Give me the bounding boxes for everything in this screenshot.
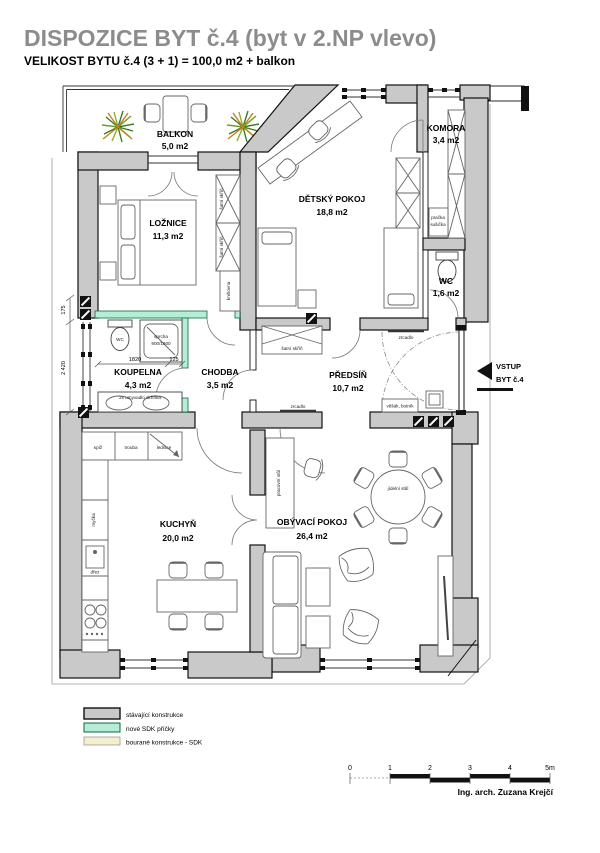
shower: sprcha 900/1900 bbox=[140, 320, 182, 362]
svg-text:pracovní stůl: pracovní stůl bbox=[275, 470, 281, 496]
wardrobe: šatní skříň šatní skříň bbox=[216, 175, 240, 271]
entrance-arrow-icon bbox=[477, 362, 492, 380]
side-table bbox=[306, 616, 330, 648]
page-title: DISPOZICE BYT č.4 (byt v 2.NP vlevo) bbox=[24, 25, 436, 51]
svg-text:trouba: trouba bbox=[124, 445, 137, 450]
bed bbox=[258, 228, 316, 308]
detsky-label: DĚTSKÝ POKOJ bbox=[299, 193, 366, 204]
chodba-area: 3,5 m2 bbox=[207, 380, 234, 390]
svg-text:sprcha: sprcha bbox=[154, 334, 168, 339]
legend-swatch-new-sdk bbox=[84, 723, 120, 732]
svg-text:knihovna: knihovna bbox=[226, 281, 231, 300]
svg-text:900/1900: 900/1900 bbox=[151, 341, 171, 346]
predsin-area: 10,7 m2 bbox=[332, 383, 363, 393]
double-sink-cabinet: 2x umyvadlo skříňka bbox=[98, 392, 182, 412]
stool bbox=[426, 391, 443, 408]
kuchyn-label: KUCHYŇ bbox=[160, 518, 196, 529]
mirror: zrcadlo bbox=[280, 404, 316, 411]
svg-text:šatní skříň: šatní skříň bbox=[281, 346, 303, 351]
svg-text:pračka: pračka bbox=[431, 215, 445, 220]
room-loznice: šatní skříň šatní skříň knihovna LOŽNICE… bbox=[100, 175, 240, 311]
legend-swatch-demolished bbox=[84, 737, 120, 745]
bed bbox=[384, 228, 418, 308]
svg-text:3: 3 bbox=[468, 765, 472, 772]
double-bed bbox=[118, 200, 196, 285]
svg-text:šatní skříň: šatní skříň bbox=[219, 236, 224, 258]
legend-label-new-sdk: nové SDK příčky bbox=[126, 726, 175, 733]
work-desk: pracovní stůl bbox=[266, 438, 325, 528]
room-obyvaci-pokoj: pracovní stůl jídelní stůl OBÝVACÍ POKOJ bbox=[263, 438, 453, 658]
floor-plan-page: DISPOZICE BYT č.4 (byt v 2.NP vlevo) VEL… bbox=[0, 0, 600, 848]
loznice-label: LOŽNICE bbox=[149, 217, 187, 228]
bookcase: knihovna bbox=[220, 271, 240, 311]
legend-swatch-existing bbox=[84, 708, 120, 719]
komora-area: 3,4 m2 bbox=[433, 135, 460, 145]
svg-text:dřez: dřez bbox=[91, 570, 101, 575]
svg-text:spíž: spíž bbox=[94, 445, 103, 450]
svg-text:125: 125 bbox=[169, 357, 178, 363]
svg-text:věšák, botník: věšák, botník bbox=[386, 404, 414, 409]
room-chodba: CHODBA 3,5 m2 bbox=[201, 367, 238, 390]
side-table bbox=[306, 568, 330, 606]
tv-unit bbox=[438, 556, 453, 656]
balcony-area: 5,0 m2 bbox=[162, 141, 189, 151]
svg-text:zrcadlo: zrcadlo bbox=[399, 335, 414, 340]
svg-text:0: 0 bbox=[348, 765, 352, 772]
svg-text:4: 4 bbox=[508, 765, 512, 772]
room-komora: pračka sušička KOMORA 3,4 m2 bbox=[427, 110, 466, 238]
wc-area: 1,6 m2 bbox=[433, 288, 460, 298]
svg-text:1820: 1820 bbox=[129, 357, 141, 363]
dining-table: jídelní stůl bbox=[353, 451, 444, 544]
bathroom-dimension: 1820 125 bbox=[95, 357, 185, 367]
wardrobe bbox=[396, 158, 420, 228]
architect-credit: Ing. arch. Zuzana Krejčí bbox=[458, 787, 554, 797]
room-wc: WC 1,6 m2 bbox=[433, 252, 460, 298]
detsky-area: 18,8 m2 bbox=[316, 207, 347, 217]
predsin-label: PŘEDSÍŇ bbox=[329, 369, 367, 380]
toilet: WC bbox=[108, 320, 132, 351]
svg-text:175: 175 bbox=[61, 305, 67, 314]
scale-bar: 0 1 2 3 4 5m bbox=[348, 765, 555, 784]
floor-plan-canvas: DISPOZICE BYT č.4 (byt v 2.NP vlevo) VEL… bbox=[0, 0, 600, 848]
kitchen-counter-top: spíž trouba lednice bbox=[82, 432, 182, 460]
obyvak-label: OBÝVACÍ POKOJ bbox=[277, 516, 347, 527]
svg-text:5m: 5m bbox=[545, 765, 555, 772]
svg-text:myčka: myčka bbox=[91, 513, 96, 527]
chodba-label: CHODBA bbox=[201, 367, 238, 377]
coat-shoe-rack: věšák, botník bbox=[382, 399, 418, 412]
svg-text:WC: WC bbox=[116, 337, 124, 342]
entrance-annotation: VSTUP BYT č.4 bbox=[477, 362, 524, 391]
wc-label: WC bbox=[439, 276, 453, 286]
armchair bbox=[339, 606, 381, 647]
entrance-label-2: BYT č.4 bbox=[496, 375, 524, 384]
sofa bbox=[263, 552, 301, 658]
kitchen-counter-left: myčka dřez bbox=[82, 460, 108, 652]
entrance-label-1: VSTUP bbox=[496, 362, 521, 371]
dimension-lines: 175 2 420 bbox=[61, 295, 74, 415]
hall-wardrobe: šatní skříň bbox=[262, 326, 322, 354]
legend: stávající konstrukce nové SDK příčky bou… bbox=[84, 708, 203, 747]
room-predsin: šatní skříň zrcadlo zrcadlo věšák, botní… bbox=[262, 326, 443, 412]
mirror: zrcadlo bbox=[388, 331, 424, 340]
svg-text:1: 1 bbox=[388, 765, 392, 772]
legend-label-demolished: bourané konstrukce - SDK bbox=[126, 740, 203, 747]
loznice-area: 11,3 m2 bbox=[153, 231, 184, 241]
koupelna-area: 4,3 m2 bbox=[125, 380, 152, 390]
armchair bbox=[337, 545, 377, 585]
svg-text:sušička: sušička bbox=[430, 222, 446, 227]
koupelna-label: KOUPELNA bbox=[114, 367, 162, 377]
room-koupelna: WC sprcha 900/1900 1820 125 2x umyvadlo … bbox=[95, 320, 185, 412]
balcony-label: BALKON bbox=[157, 129, 193, 139]
komora-label: KOMORA bbox=[427, 123, 466, 133]
svg-text:2x umyvadlo skříňka: 2x umyvadlo skříňka bbox=[119, 395, 161, 400]
svg-text:jídelní stůl: jídelní stůl bbox=[387, 485, 409, 491]
obyvak-area: 26,4 m2 bbox=[296, 531, 327, 541]
plant-icon bbox=[102, 111, 134, 142]
svg-text:zrcadlo: zrcadlo bbox=[291, 404, 306, 409]
balcony-table bbox=[144, 96, 207, 132]
svg-text:šatní skříň: šatní skříň bbox=[219, 188, 224, 210]
svg-text:2 420: 2 420 bbox=[61, 361, 67, 375]
svg-text:2: 2 bbox=[428, 765, 432, 772]
room-kuchyn: spíž trouba lednice myčka dřez bbox=[82, 432, 237, 652]
legend-label-existing: stávající konstrukce bbox=[126, 712, 183, 719]
page-subtitle: VELIKOST BYTU č.4 (3 + 1) = 100,0 m2 + b… bbox=[24, 54, 295, 68]
kitchen-table bbox=[157, 562, 237, 630]
washer-dryer: pračka sušička bbox=[429, 208, 448, 236]
kuchyn-area: 20,0 m2 bbox=[162, 533, 193, 543]
